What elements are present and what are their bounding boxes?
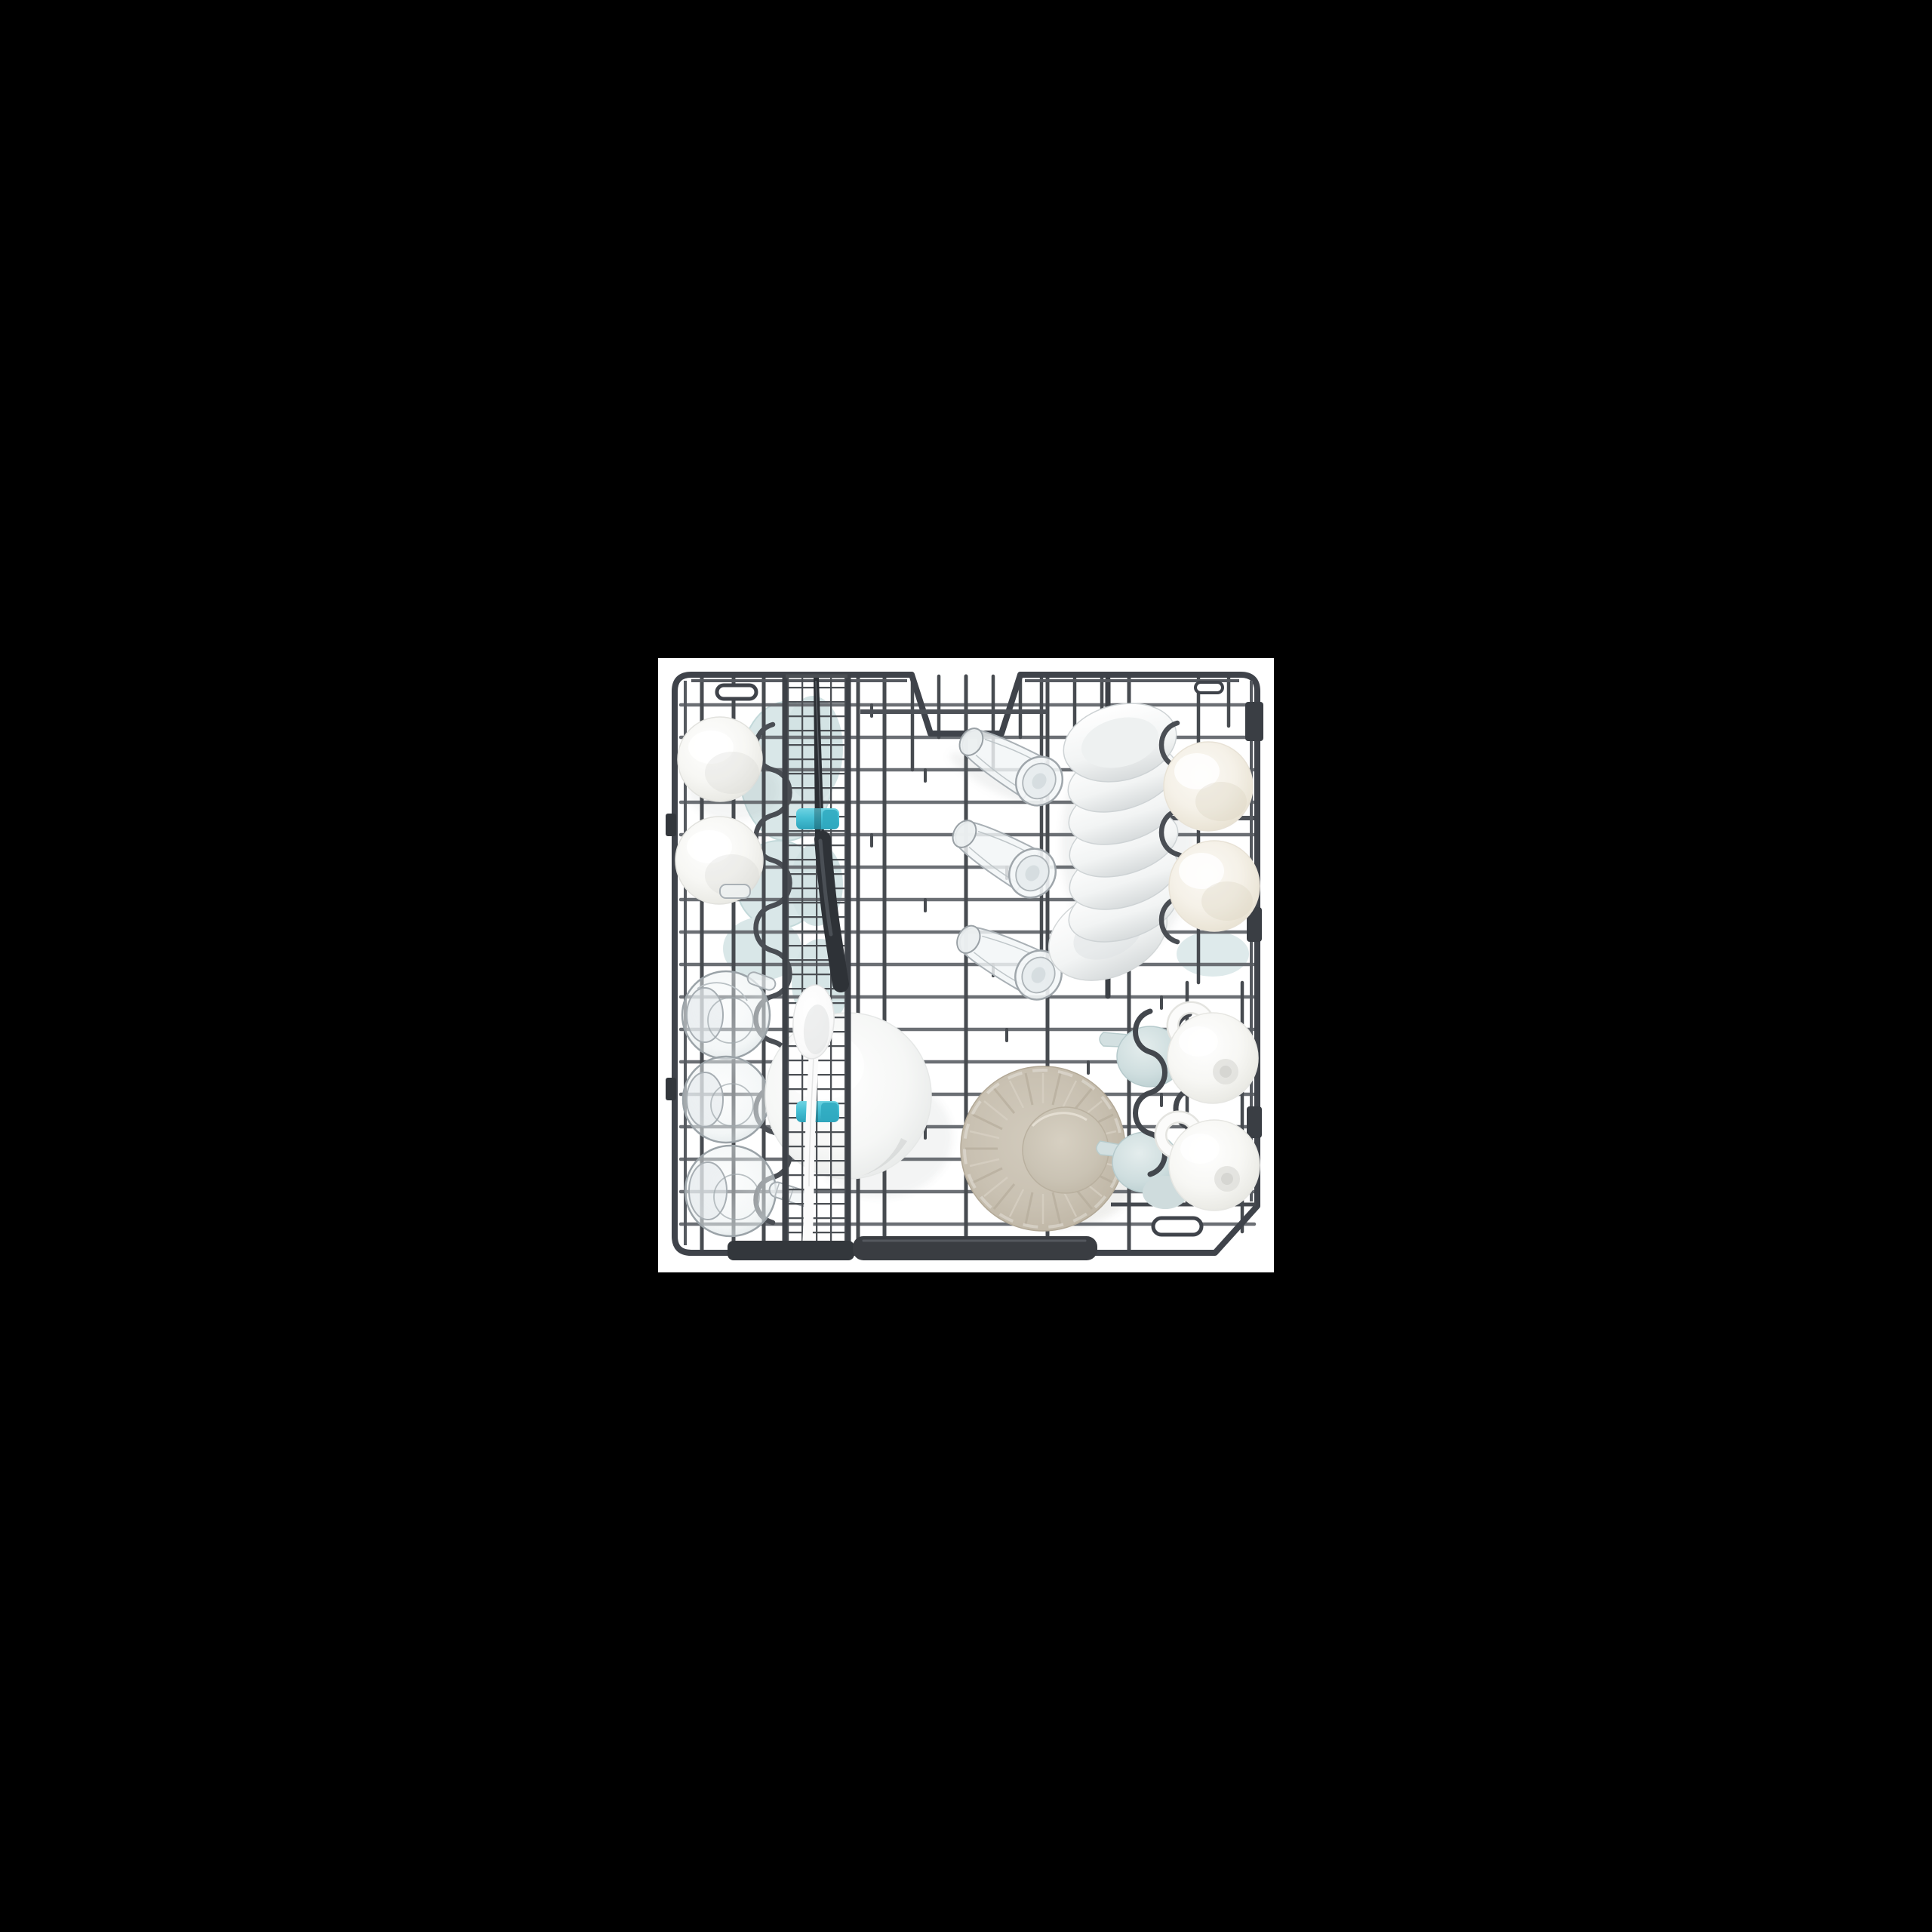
- clip-right-top: [1245, 702, 1263, 741]
- glass-knob: [720, 884, 750, 898]
- teal-clip-1: [796, 808, 839, 829]
- clip-left-low: [666, 1078, 676, 1100]
- slot-bottom-right: [1153, 1218, 1201, 1235]
- clip-left-top: [666, 814, 676, 836]
- teal-clip-2: [796, 1101, 839, 1122]
- slot-top-right: [1195, 682, 1223, 693]
- beige-plate-well: [1023, 1107, 1109, 1193]
- product-photo-dishwasher-rack: [658, 658, 1274, 1272]
- slot-top-left: [717, 685, 756, 699]
- clip-right-low: [1247, 1106, 1262, 1138]
